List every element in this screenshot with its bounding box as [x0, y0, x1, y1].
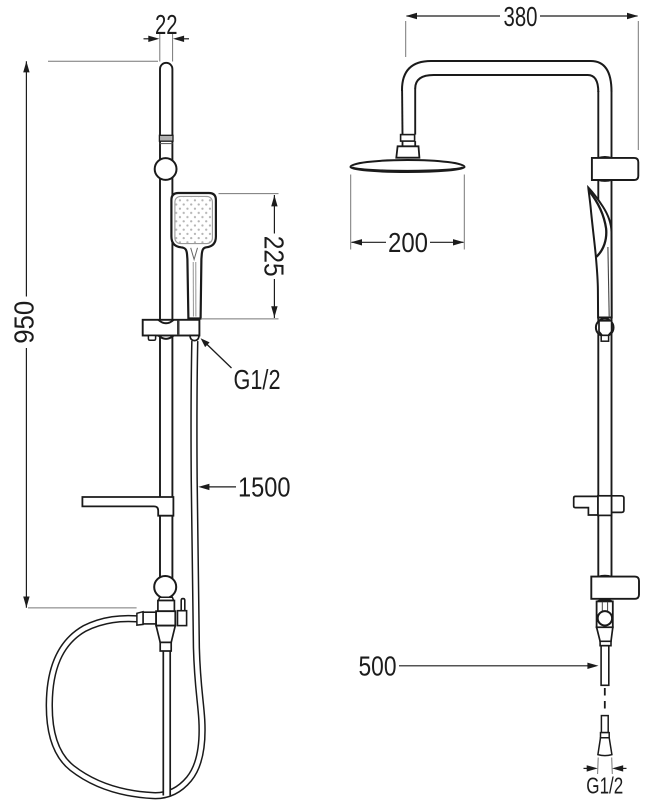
svg-text:22: 22: [155, 9, 178, 40]
svg-text:1500: 1500: [238, 472, 291, 503]
svg-text:G1/2: G1/2: [586, 773, 623, 799]
svg-text:500: 500: [359, 651, 397, 682]
svg-text:950: 950: [9, 301, 40, 344]
svg-text:G1/2: G1/2: [234, 364, 281, 395]
svg-text:200: 200: [388, 227, 428, 258]
svg-text:225: 225: [259, 236, 290, 277]
svg-text:380: 380: [504, 1, 538, 32]
